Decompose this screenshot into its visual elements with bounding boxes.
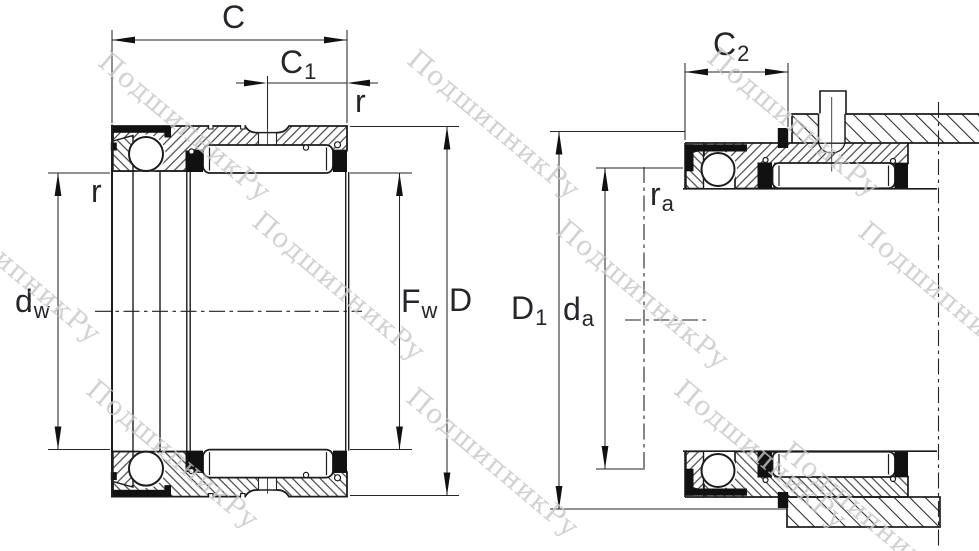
dim-label-r-left: r [91,175,102,207]
lube-boss [820,91,846,114]
right-view-dimensions [550,63,788,509]
housing-seal-top [778,128,788,148]
dim-label-ra: ra [650,178,674,215]
dim-label-C: C [222,1,245,33]
dim-label-C2: C2 [713,28,749,65]
bearing-technical-drawing [0,0,979,551]
dim-label-Fw: Fw [401,285,437,322]
bearing-drawing-page: C C1 r r dw Fw D C2 ra D1 da ПодшипникРу… [0,0,979,551]
housing-seal-bottom [778,492,788,508]
dim-label-C1: C1 [280,46,316,83]
dim-label-da: da [563,293,594,330]
dim-label-dw: dw [15,285,50,322]
housing-bottom-block [787,497,940,527]
dim-label-D1: D1 [511,292,547,329]
left-view-section [48,30,459,498]
dimension-arrows [55,37,451,496]
right-view-mounted-section [550,63,979,546]
dimension-arrows [556,69,788,509]
left-view-dimensions [48,30,459,496]
dim-label-D: D [449,284,472,316]
dim-label-r-right: r [355,85,366,117]
